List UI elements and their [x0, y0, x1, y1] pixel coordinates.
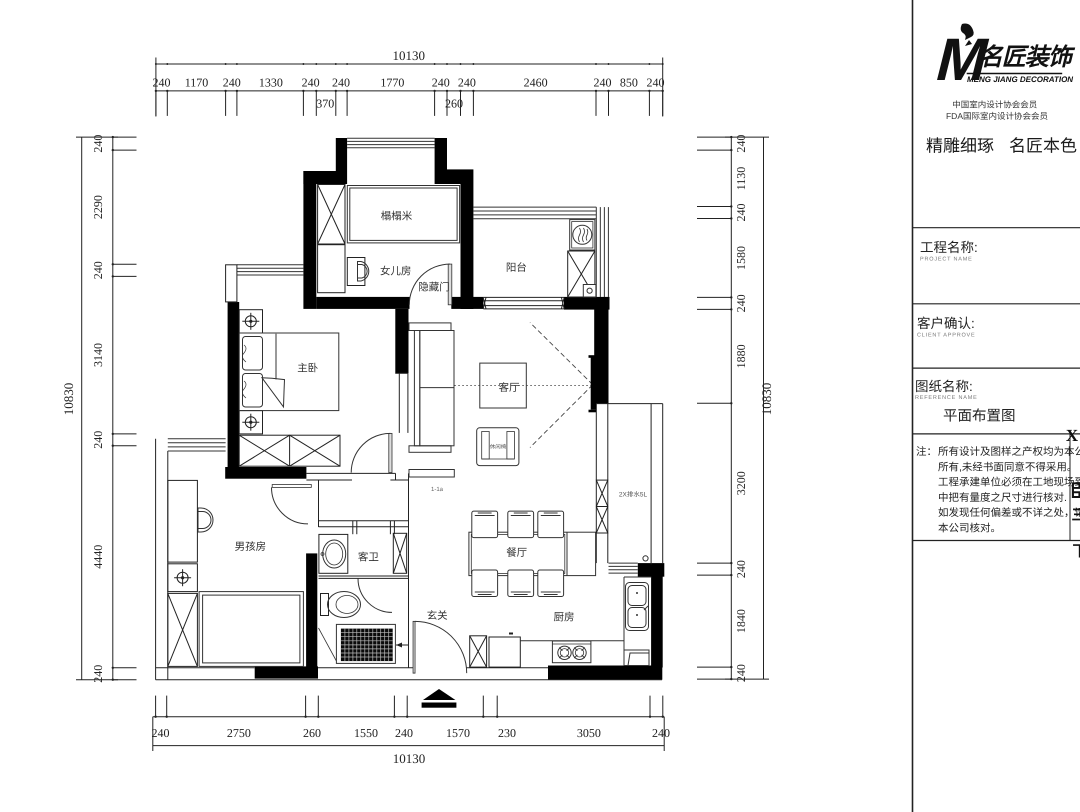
- svg-text:2X排水5L: 2X排水5L: [619, 491, 648, 499]
- svg-text:女儿房: 女儿房: [380, 266, 412, 278]
- svg-text:240: 240: [395, 726, 413, 740]
- svg-text:玄关: 玄关: [427, 610, 448, 622]
- svg-text:1580: 1580: [734, 246, 748, 270]
- svg-text:工程承建单位必须在工地现场到图: 工程承建单位必须在工地现场到图: [938, 477, 1080, 489]
- svg-text:240: 240: [152, 726, 170, 740]
- svg-text:X: X: [1066, 426, 1079, 445]
- svg-text:餐厅: 餐厅: [506, 547, 527, 559]
- svg-text:10830: 10830: [61, 383, 76, 416]
- svg-text:休闲椅: 休闲椅: [490, 444, 507, 451]
- svg-text:240: 240: [652, 726, 670, 740]
- svg-text:阳台: 阳台: [506, 262, 527, 274]
- svg-text:3140: 3140: [91, 343, 105, 367]
- svg-text:男孩房: 男孩房: [235, 541, 267, 553]
- svg-text:1770: 1770: [380, 76, 404, 90]
- svg-text:工程名称:: 工程名称:: [920, 240, 978, 255]
- svg-text:主卧: 主卧: [297, 363, 318, 375]
- svg-text:客户确认:: 客户确认:: [917, 316, 975, 331]
- svg-text:240: 240: [91, 431, 105, 449]
- svg-text:240: 240: [91, 261, 105, 279]
- svg-text:精雕细琢: 精雕细琢: [926, 137, 994, 156]
- svg-text:厨房: 厨房: [554, 612, 575, 624]
- svg-text:240: 240: [153, 76, 171, 90]
- svg-text:客卫: 客卫: [358, 552, 379, 564]
- svg-text:客厅: 客厅: [499, 382, 520, 394]
- svg-text:REFERENCE NAME: REFERENCE NAME: [915, 395, 978, 401]
- svg-text:所有设计及图样之产权均为本公司: 所有设计及图样之产权均为本公司: [938, 446, 1080, 458]
- svg-text:MENG JIANG DECORATION: MENG JIANG DECORATION: [967, 75, 1073, 84]
- svg-text:CLIENT APPROVE: CLIENT APPROVE: [917, 333, 975, 339]
- svg-text:1-1a: 1-1a: [431, 486, 444, 493]
- svg-text:榻榻米: 榻榻米: [381, 211, 413, 223]
- svg-text:2750: 2750: [227, 726, 251, 740]
- svg-text:850: 850: [620, 76, 638, 90]
- svg-text:1880: 1880: [734, 344, 748, 368]
- svg-text:1570: 1570: [446, 726, 470, 740]
- svg-text:240: 240: [734, 294, 748, 312]
- svg-text:240: 240: [302, 76, 320, 90]
- svg-text:三: 三: [1071, 507, 1080, 524]
- svg-text:本公司核对。: 本公司核对。: [938, 523, 1001, 535]
- svg-text:240: 240: [594, 76, 612, 90]
- svg-text:240: 240: [332, 76, 350, 90]
- svg-text:1550: 1550: [354, 726, 378, 740]
- svg-text:3200: 3200: [734, 471, 748, 495]
- svg-text:下: 下: [1072, 543, 1080, 560]
- svg-text:1330: 1330: [259, 76, 283, 90]
- svg-text:平面布置图: 平面布置图: [943, 408, 1016, 425]
- svg-text:注：: 注：: [916, 446, 937, 458]
- svg-text:10830: 10830: [759, 383, 774, 416]
- svg-text:370: 370: [316, 97, 334, 111]
- svg-text:240: 240: [432, 76, 450, 90]
- svg-text:1170: 1170: [185, 76, 209, 90]
- svg-text:FDA国际室内设计协会会员: FDA国际室内设计协会会员: [946, 111, 1048, 121]
- svg-text:中把有量度之尺寸进行核对.: 中把有量度之尺寸进行核对.: [938, 492, 1067, 504]
- svg-text:2460: 2460: [524, 76, 548, 90]
- svg-text:图纸名称:: 图纸名称:: [915, 379, 973, 394]
- svg-text:240: 240: [647, 76, 665, 90]
- svg-text:4440: 4440: [91, 545, 105, 569]
- svg-text:中国室内设计协会会员: 中国室内设计协会会员: [952, 100, 1037, 110]
- svg-text:1130: 1130: [734, 167, 748, 191]
- svg-text:240: 240: [458, 76, 476, 90]
- svg-text:如发现任何偏差或不详之处，请预: 如发现任何偏差或不详之处，请预: [938, 507, 1080, 519]
- svg-text:260: 260: [445, 97, 463, 111]
- svg-text:240: 240: [223, 76, 241, 90]
- svg-text:240: 240: [734, 204, 748, 222]
- svg-text:240: 240: [734, 560, 748, 578]
- svg-text:260: 260: [303, 726, 321, 740]
- svg-text:3050: 3050: [577, 726, 601, 740]
- svg-text:10130: 10130: [392, 48, 425, 63]
- svg-text:10130: 10130: [393, 751, 426, 766]
- svg-text:所有,未经书面同意不得采用。: 所有,未经书面同意不得采用。: [938, 461, 1077, 473]
- svg-text:名匠本色: 名匠本色: [1009, 137, 1077, 156]
- svg-text:230: 230: [498, 726, 516, 740]
- svg-text:PROJECT NAME: PROJECT NAME: [920, 257, 973, 263]
- svg-text:臣: 臣: [1070, 481, 1080, 501]
- svg-text:2290: 2290: [91, 195, 105, 219]
- svg-text:隐藏门: 隐藏门: [418, 282, 450, 294]
- svg-text:1840: 1840: [734, 609, 748, 633]
- svg-text:名匠装饰: 名匠装饰: [977, 44, 1077, 71]
